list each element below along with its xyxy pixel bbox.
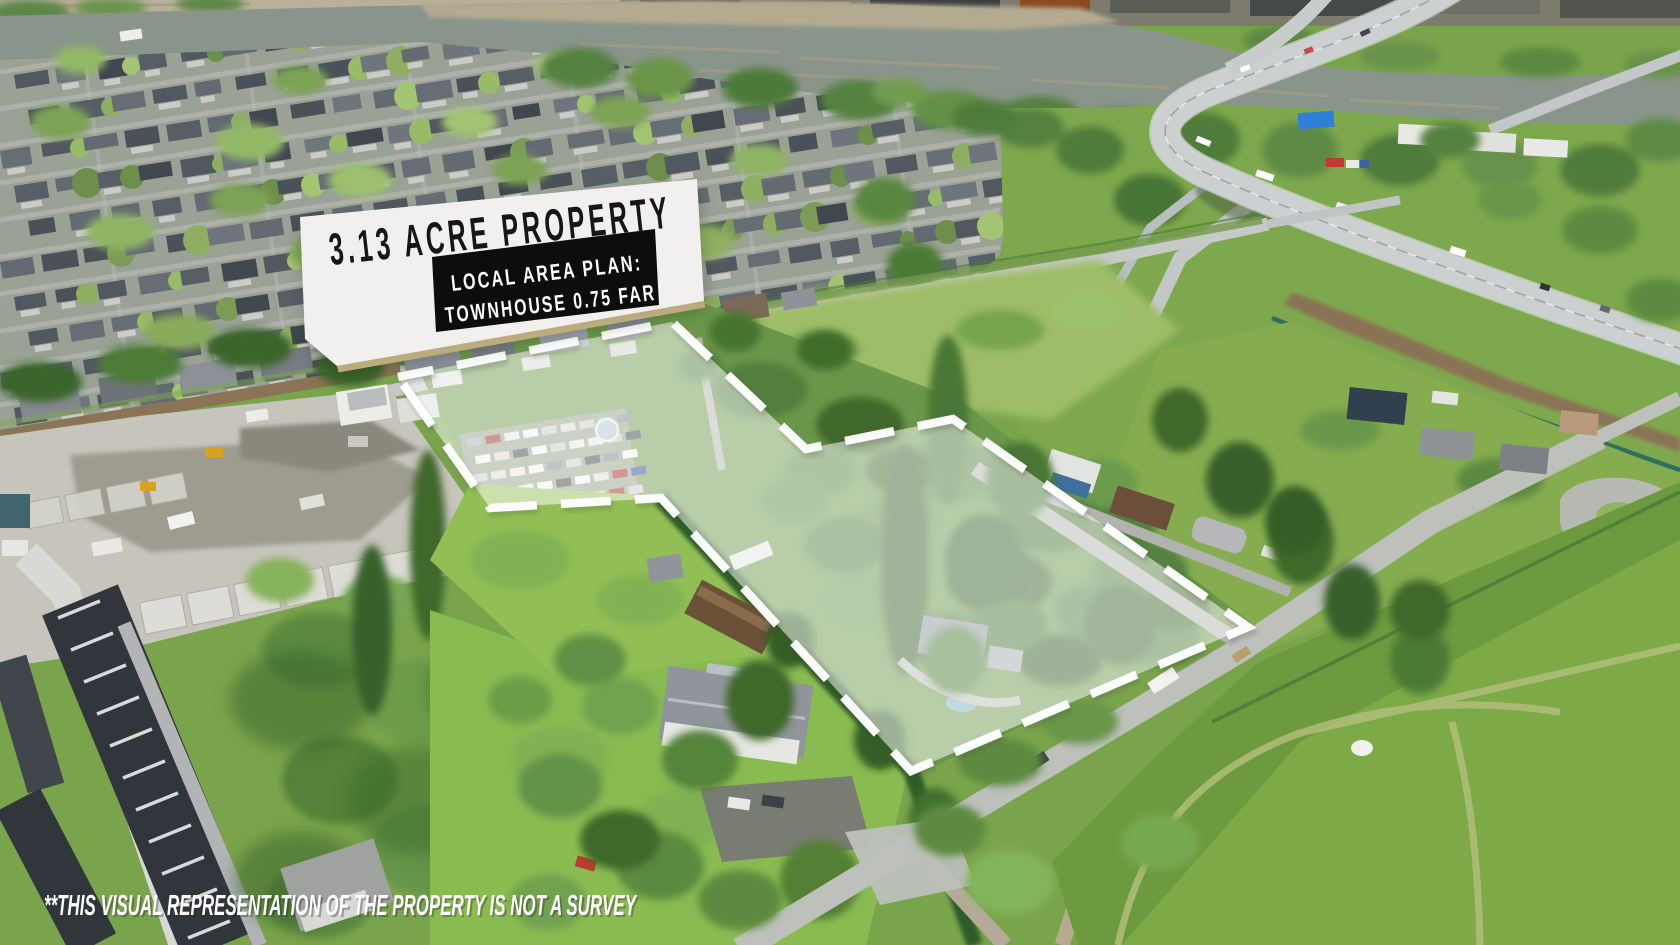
- svg-text:**THIS VISUAL REPRESENTATION O: **THIS VISUAL REPRESENTATION OF THE PROP…: [44, 890, 638, 922]
